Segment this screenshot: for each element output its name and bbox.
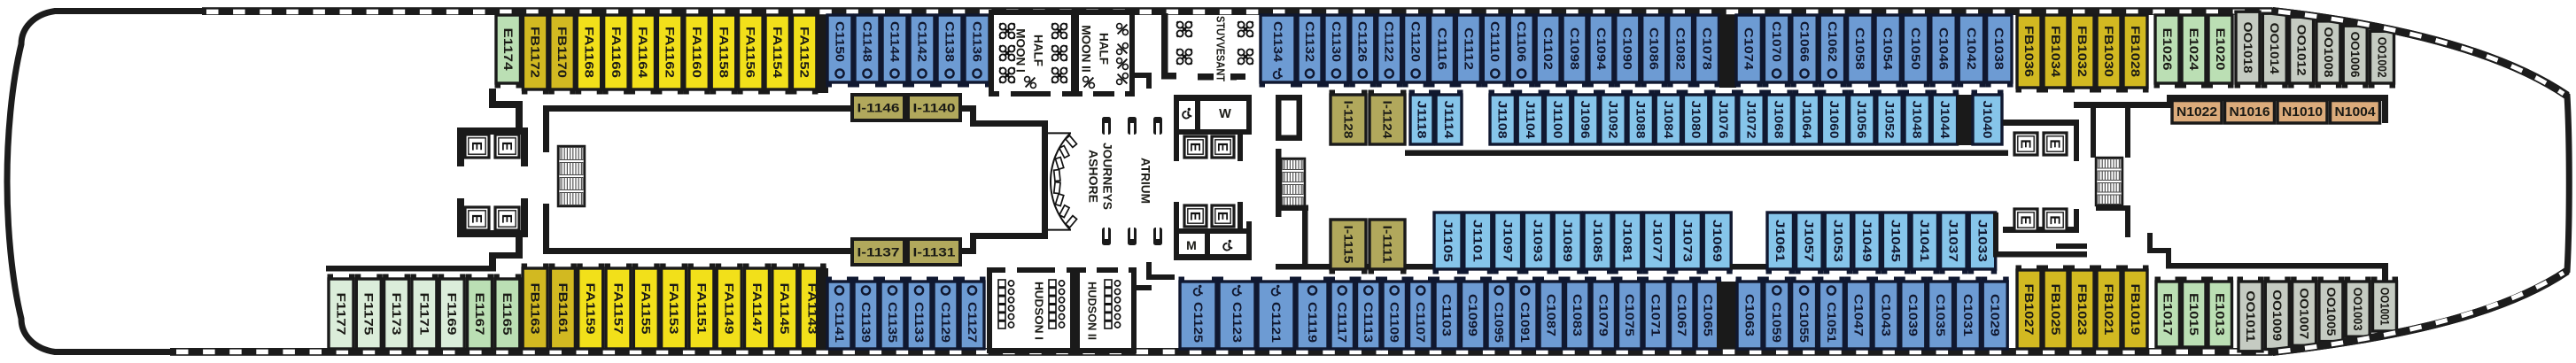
svg-text:J1104: J1104 bbox=[1524, 101, 1537, 139]
svg-text:J1085: J1085 bbox=[1591, 220, 1604, 262]
svg-text:OO1009: OO1009 bbox=[2270, 290, 2284, 341]
svg-text:C1099: C1099 bbox=[1466, 294, 1479, 336]
svg-text:FA1152: FA1152 bbox=[798, 27, 811, 78]
svg-text:C1130: C1130 bbox=[1330, 21, 1343, 62]
svg-text:E1165: E1165 bbox=[500, 293, 514, 336]
svg-text:J1108: J1108 bbox=[1496, 101, 1509, 139]
svg-text:J1041: J1041 bbox=[1918, 220, 1931, 262]
svg-text:OO1014: OO1014 bbox=[2268, 23, 2281, 74]
svg-text:C1035: C1035 bbox=[1934, 294, 1947, 336]
svg-text:C1094: C1094 bbox=[1594, 27, 1608, 70]
svg-text:E: E bbox=[2018, 215, 2033, 224]
svg-text:E: E bbox=[2047, 215, 2062, 224]
svg-text:C1126: C1126 bbox=[1356, 21, 1369, 62]
svg-text:FB1028: FB1028 bbox=[2129, 26, 2142, 77]
svg-text:C1134: C1134 bbox=[1271, 21, 1284, 62]
svg-text:I-1146: I-1146 bbox=[857, 100, 900, 114]
svg-text:J1064: J1064 bbox=[1800, 101, 1813, 139]
svg-text:C1103: C1103 bbox=[1440, 294, 1454, 336]
svg-text:C1065: C1065 bbox=[1702, 294, 1715, 336]
svg-text:J1045: J1045 bbox=[1889, 220, 1903, 262]
svg-text:C1051: C1051 bbox=[1825, 302, 1838, 343]
svg-text:J1044: J1044 bbox=[1938, 101, 1951, 139]
svg-text:I-1140: I-1140 bbox=[913, 100, 956, 114]
svg-text:C1071: C1071 bbox=[1649, 294, 1663, 336]
svg-text:N1016: N1016 bbox=[2230, 105, 2270, 120]
svg-text:C1046: C1046 bbox=[1936, 27, 1950, 70]
svg-text:C1039: C1039 bbox=[1906, 294, 1920, 336]
svg-text:C1042: C1042 bbox=[1965, 27, 1978, 70]
svg-text:E: E bbox=[1214, 212, 1230, 220]
svg-text:C1038: C1038 bbox=[1992, 27, 2006, 70]
svg-text:E: E bbox=[2047, 139, 2062, 148]
svg-text:FA1157: FA1157 bbox=[611, 283, 625, 335]
svg-text:C1129: C1129 bbox=[939, 302, 952, 343]
svg-text:C1029: C1029 bbox=[1989, 294, 2002, 336]
svg-text:OO1003: OO1003 bbox=[2351, 288, 2364, 331]
svg-text:J1097: J1097 bbox=[1501, 220, 1515, 262]
svg-text:F1177: F1177 bbox=[334, 293, 347, 336]
svg-text:OO1001: OO1001 bbox=[2378, 288, 2391, 326]
svg-text:I-1124: I-1124 bbox=[1380, 101, 1393, 140]
svg-text:C1120: C1120 bbox=[1409, 21, 1423, 62]
svg-text:C1091: C1091 bbox=[1518, 302, 1532, 343]
svg-text:E: E bbox=[499, 142, 514, 151]
svg-text:FA1166: FA1166 bbox=[609, 27, 623, 78]
svg-text:C1054: C1054 bbox=[1882, 27, 1895, 70]
svg-text:F1171: F1171 bbox=[417, 292, 431, 335]
svg-text:E: E bbox=[469, 142, 484, 151]
svg-text:I-1111: I-1111 bbox=[1380, 226, 1393, 265]
svg-text:C1112: C1112 bbox=[1462, 27, 1475, 70]
svg-text:J1084: J1084 bbox=[1662, 101, 1675, 139]
svg-text:C1107: C1107 bbox=[1414, 302, 1427, 343]
svg-text:FA1158: FA1158 bbox=[717, 27, 730, 78]
svg-text:STUYVESANT: STUYVESANT bbox=[1214, 16, 1227, 81]
svg-text:J1060: J1060 bbox=[1827, 101, 1841, 139]
svg-text:J1077: J1077 bbox=[1651, 220, 1664, 262]
svg-text:C1123: C1123 bbox=[1230, 302, 1244, 343]
svg-text:C1136: C1136 bbox=[970, 21, 983, 62]
svg-text:FB1027: FB1027 bbox=[2022, 284, 2036, 336]
svg-text:J1068: J1068 bbox=[1773, 101, 1786, 139]
svg-text:HALF: HALF bbox=[1097, 33, 1110, 65]
svg-text:E: E bbox=[1187, 212, 1202, 220]
svg-text:HUDSON II: HUDSON II bbox=[1085, 282, 1098, 340]
svg-text:C1090: C1090 bbox=[1621, 27, 1634, 70]
svg-text:C1083: C1083 bbox=[1571, 294, 1584, 336]
svg-text:J1118: J1118 bbox=[1415, 101, 1428, 139]
svg-text:C1148: C1148 bbox=[860, 21, 873, 62]
svg-text:J1052: J1052 bbox=[1882, 101, 1896, 139]
svg-text:J1073: J1073 bbox=[1680, 220, 1694, 262]
svg-text:C1117: C1117 bbox=[1336, 302, 1349, 343]
svg-text:E1167: E1167 bbox=[473, 293, 486, 336]
svg-text:F1169: F1169 bbox=[446, 293, 459, 336]
svg-text:J1088: J1088 bbox=[1634, 101, 1648, 139]
svg-text:J1081: J1081 bbox=[1621, 220, 1634, 262]
svg-text:C1144: C1144 bbox=[888, 21, 901, 62]
svg-text:J1069: J1069 bbox=[1711, 220, 1724, 262]
svg-text:E: E bbox=[1214, 143, 1230, 151]
svg-text:E: E bbox=[469, 214, 484, 223]
svg-text:C1074: C1074 bbox=[1742, 27, 1756, 70]
svg-text:C1043: C1043 bbox=[1879, 294, 1892, 336]
svg-text:C1132: C1132 bbox=[1303, 21, 1316, 62]
svg-text:ATRIUM: ATRIUM bbox=[1138, 158, 1152, 204]
svg-text:F1173: F1173 bbox=[390, 293, 403, 336]
svg-text:FA1153: FA1153 bbox=[667, 283, 680, 335]
svg-text:FB1019: FB1019 bbox=[2129, 284, 2142, 336]
svg-text:C1098: C1098 bbox=[1568, 27, 1581, 70]
svg-text:C1066: C1066 bbox=[1797, 21, 1811, 62]
svg-text:C1135: C1135 bbox=[886, 302, 899, 343]
svg-text:J1105: J1105 bbox=[1441, 220, 1455, 262]
svg-text:OO1005: OO1005 bbox=[2324, 287, 2338, 336]
svg-text:ASHORE: ASHORE bbox=[1086, 150, 1099, 203]
svg-text:FB1036: FB1036 bbox=[2022, 26, 2036, 77]
svg-text:C1133: C1133 bbox=[912, 302, 926, 343]
svg-text:C1121: C1121 bbox=[1269, 302, 1283, 343]
svg-text:C1079: C1079 bbox=[1597, 294, 1610, 336]
svg-text:C1067: C1067 bbox=[1675, 294, 1688, 336]
svg-text:C1059: C1059 bbox=[1770, 302, 1783, 343]
svg-text:FB1172: FB1172 bbox=[529, 27, 542, 78]
svg-text:J1057: J1057 bbox=[1803, 220, 1816, 262]
svg-text:C1102: C1102 bbox=[1541, 27, 1555, 70]
svg-text:C1050: C1050 bbox=[1909, 27, 1922, 70]
svg-text:HALF: HALF bbox=[1031, 35, 1044, 66]
svg-text:M: M bbox=[1186, 238, 1197, 252]
svg-text:J1092: J1092 bbox=[1606, 101, 1619, 139]
svg-text:E1026: E1026 bbox=[2161, 28, 2174, 71]
svg-text:FB1025: FB1025 bbox=[2049, 284, 2062, 336]
svg-text:C1078: C1078 bbox=[1700, 27, 1713, 70]
svg-text:E: E bbox=[499, 214, 514, 223]
svg-text:C1127: C1127 bbox=[966, 302, 979, 343]
svg-text:J1061: J1061 bbox=[1773, 220, 1787, 262]
svg-text:I-1128: I-1128 bbox=[1341, 101, 1354, 140]
svg-text:C1110: C1110 bbox=[1488, 21, 1501, 62]
svg-text:J1089: J1089 bbox=[1561, 220, 1574, 262]
svg-text:C1082: C1082 bbox=[1674, 27, 1688, 70]
svg-text:J1080: J1080 bbox=[1689, 101, 1703, 139]
svg-text:J1056: J1056 bbox=[1855, 101, 1868, 139]
svg-text:FA1159: FA1159 bbox=[584, 283, 597, 335]
svg-text:FB1021: FB1021 bbox=[2102, 284, 2115, 336]
svg-text:FB1170: FB1170 bbox=[555, 27, 569, 78]
svg-text:J1072: J1072 bbox=[1744, 101, 1757, 139]
svg-text:OO1008: OO1008 bbox=[2322, 27, 2335, 77]
svg-text:C1119: C1119 bbox=[1306, 302, 1319, 343]
svg-text:OO1007: OO1007 bbox=[2298, 288, 2311, 339]
svg-text:J1033: J1033 bbox=[1975, 220, 1989, 262]
svg-text:C1125: C1125 bbox=[1191, 302, 1205, 343]
svg-text:OO1012: OO1012 bbox=[2295, 25, 2308, 76]
svg-text:FA1147: FA1147 bbox=[750, 283, 764, 335]
svg-text:E1015: E1015 bbox=[2187, 293, 2200, 336]
svg-text:C1138: C1138 bbox=[943, 21, 956, 62]
svg-text:FA1154: FA1154 bbox=[771, 27, 784, 78]
svg-text:J1100: J1100 bbox=[1551, 101, 1564, 139]
svg-text:FB1023: FB1023 bbox=[2076, 284, 2089, 336]
svg-text:J1053: J1053 bbox=[1831, 220, 1844, 262]
svg-text:J1101: J1101 bbox=[1471, 220, 1485, 262]
svg-text:FA1164: FA1164 bbox=[636, 27, 649, 78]
svg-text:FA1168: FA1168 bbox=[582, 27, 595, 78]
svg-text:C1141: C1141 bbox=[833, 302, 846, 343]
svg-text:MOON II: MOON II bbox=[1079, 25, 1092, 72]
svg-text:C1139: C1139 bbox=[859, 302, 873, 343]
svg-text:E1174: E1174 bbox=[501, 28, 515, 71]
svg-text:F1175: F1175 bbox=[362, 293, 376, 336]
svg-text:C1070: C1070 bbox=[1770, 21, 1783, 62]
svg-text:FA1149: FA1149 bbox=[723, 283, 736, 335]
svg-text:E: E bbox=[2018, 139, 2033, 148]
svg-text:J1096: J1096 bbox=[1579, 101, 1592, 139]
svg-text:MOON I: MOON I bbox=[1013, 28, 1027, 73]
svg-text:J1076: J1076 bbox=[1717, 101, 1730, 139]
svg-text:C1063: C1063 bbox=[1742, 294, 1756, 336]
svg-text:E1024: E1024 bbox=[2187, 28, 2200, 71]
svg-text:N1010: N1010 bbox=[2282, 105, 2323, 120]
svg-text:C1142: C1142 bbox=[915, 21, 928, 62]
svg-text:C1116: C1116 bbox=[1435, 27, 1448, 70]
svg-text:C1122: C1122 bbox=[1383, 21, 1396, 62]
svg-text:C1109: C1109 bbox=[1388, 302, 1401, 343]
svg-text:J1114: J1114 bbox=[1442, 101, 1455, 139]
svg-text:C1055: C1055 bbox=[1797, 302, 1811, 343]
svg-text:FB1034: FB1034 bbox=[2049, 26, 2062, 77]
svg-text:FA1160: FA1160 bbox=[690, 27, 703, 78]
svg-text:C1086: C1086 bbox=[1648, 27, 1661, 70]
svg-text:E: E bbox=[1187, 143, 1202, 151]
svg-text:J1049: J1049 bbox=[1860, 220, 1874, 262]
svg-text:HUDSON I: HUDSON I bbox=[1032, 282, 1045, 340]
svg-text:E1017: E1017 bbox=[2161, 293, 2175, 336]
svg-text:E1013: E1013 bbox=[2214, 293, 2227, 336]
svg-text:W: W bbox=[1219, 107, 1231, 121]
svg-text:C1047: C1047 bbox=[1852, 294, 1866, 336]
svg-text:OO1002: OO1002 bbox=[2375, 37, 2388, 78]
svg-text:J1093: J1093 bbox=[1531, 220, 1544, 262]
svg-text:FA1145: FA1145 bbox=[778, 283, 791, 335]
svg-text:C1062: C1062 bbox=[1826, 21, 1839, 62]
svg-text:C1031: C1031 bbox=[1961, 294, 1975, 336]
svg-text:I-1131: I-1131 bbox=[913, 244, 956, 259]
svg-text:FA1156: FA1156 bbox=[744, 27, 757, 78]
svg-text:C1075: C1075 bbox=[1623, 294, 1636, 336]
svg-text:J1037: J1037 bbox=[1947, 220, 1960, 262]
svg-text:J1048: J1048 bbox=[1911, 101, 1924, 139]
svg-text:OO1006: OO1006 bbox=[2348, 32, 2362, 78]
svg-text:E1020: E1020 bbox=[2214, 28, 2227, 71]
svg-text:FA1155: FA1155 bbox=[640, 283, 653, 335]
svg-text:FB1032: FB1032 bbox=[2076, 26, 2089, 77]
svg-text:FA1162: FA1162 bbox=[663, 27, 677, 78]
svg-text:C1106: C1106 bbox=[1515, 21, 1528, 62]
svg-text:N1004: N1004 bbox=[2335, 105, 2376, 120]
svg-text:C1113: C1113 bbox=[1362, 302, 1375, 343]
svg-text:FB1161: FB1161 bbox=[556, 283, 570, 335]
svg-text:N1022: N1022 bbox=[2176, 105, 2217, 120]
svg-text:JOURNEYS: JOURNEYS bbox=[1100, 143, 1113, 210]
svg-text:J1040: J1040 bbox=[1981, 101, 1994, 139]
svg-text:C1087: C1087 bbox=[1545, 294, 1558, 336]
svg-text:C1095: C1095 bbox=[1493, 302, 1506, 343]
svg-text:OO1011: OO1011 bbox=[2244, 290, 2257, 342]
svg-text:C1058: C1058 bbox=[1853, 27, 1866, 70]
svg-text:C1150: C1150 bbox=[833, 21, 846, 62]
svg-text:FB1030: FB1030 bbox=[2102, 26, 2115, 77]
svg-text:I-1137: I-1137 bbox=[857, 244, 900, 259]
svg-text:OO1018: OO1018 bbox=[2241, 22, 2254, 73]
svg-text:I-1115: I-1115 bbox=[1341, 226, 1354, 265]
svg-text:FA1151: FA1151 bbox=[694, 283, 708, 335]
svg-text:FB1163: FB1163 bbox=[529, 283, 542, 335]
